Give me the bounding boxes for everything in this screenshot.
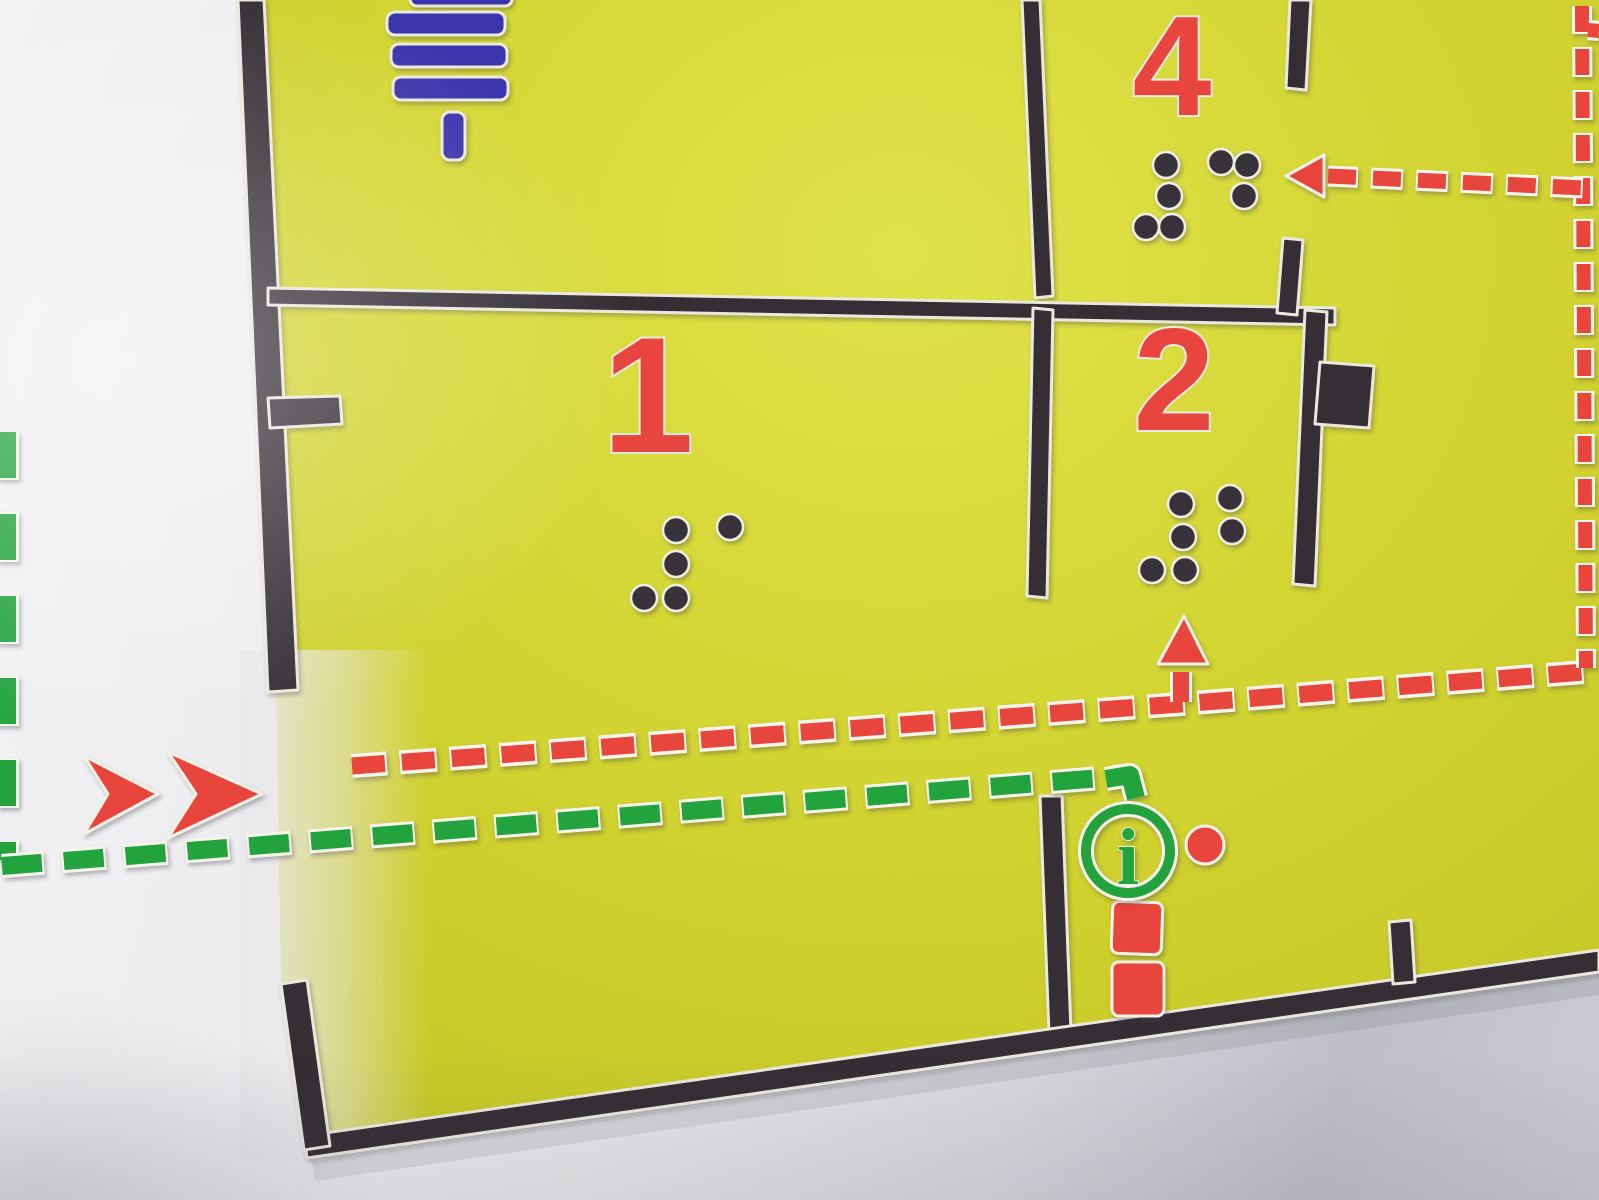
braille-dot (1133, 214, 1159, 240)
room-2-label: 2 (1133, 298, 1214, 461)
route-marker-icon (1112, 962, 1164, 1016)
entrance-arrows-icon (84, 756, 158, 834)
wall-left-door-stub (268, 396, 342, 428)
floor-left-fade (240, 650, 430, 1160)
tactile-floor-plan-sign: 1 2 4 (0, 0, 1599, 1200)
stairs-bar (410, 0, 512, 6)
room-4-label: 4 (1133, 0, 1212, 146)
braille-dot (717, 514, 743, 540)
braille-dot (1168, 491, 1194, 517)
wall-room4-right-upper (1286, 0, 1311, 90)
stairs-bar (387, 12, 505, 35)
braille-dot (1231, 183, 1257, 209)
info-letter: i (1117, 814, 1139, 902)
braille-dot (1234, 152, 1260, 178)
braille-dot (1219, 518, 1245, 544)
wall-room1-room2-divider (1027, 308, 1053, 598)
braille-dot (1153, 152, 1179, 178)
braille-dot (663, 585, 689, 611)
wall-bottom-stub (1389, 920, 1415, 984)
braille-dot (1139, 557, 1165, 583)
location-dot-icon (1186, 826, 1224, 864)
braille-dot (1172, 557, 1198, 583)
braille-dot (1170, 524, 1196, 550)
braille-dot (1208, 149, 1234, 175)
braille-dot (631, 585, 657, 611)
stairs-bar-foot (442, 112, 465, 160)
stairs-bar (391, 44, 507, 67)
braille-dot (1156, 183, 1182, 209)
stairs-bar (393, 77, 508, 100)
braille-dot (1159, 214, 1185, 240)
red-dash-top-hook (1588, 30, 1599, 31)
door-marker-square (1315, 362, 1374, 428)
wall-room4-right-lower (1277, 238, 1303, 315)
braille-dot (1217, 485, 1243, 511)
floor-plan-drawing: 1 2 4 (0, 0, 1599, 1200)
route-marker-icon (1111, 901, 1163, 955)
braille-dot (663, 551, 689, 577)
braille-dot (663, 517, 689, 543)
room-1-label: 1 (602, 303, 694, 487)
